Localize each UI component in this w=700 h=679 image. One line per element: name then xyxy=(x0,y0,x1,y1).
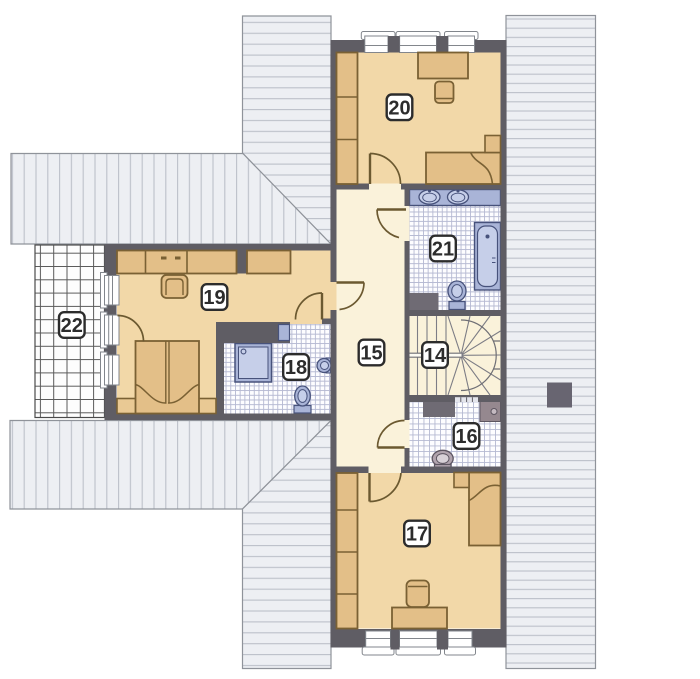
svg-text:22: 22 xyxy=(61,315,83,337)
svg-text:19: 19 xyxy=(203,287,225,309)
svg-text:21: 21 xyxy=(432,239,454,261)
svg-text:20: 20 xyxy=(388,98,410,120)
svg-text:14: 14 xyxy=(424,345,447,367)
svg-text:18: 18 xyxy=(285,357,307,379)
svg-text:17: 17 xyxy=(406,524,428,546)
svg-text:16: 16 xyxy=(455,426,477,448)
svg-text:15: 15 xyxy=(360,343,382,365)
